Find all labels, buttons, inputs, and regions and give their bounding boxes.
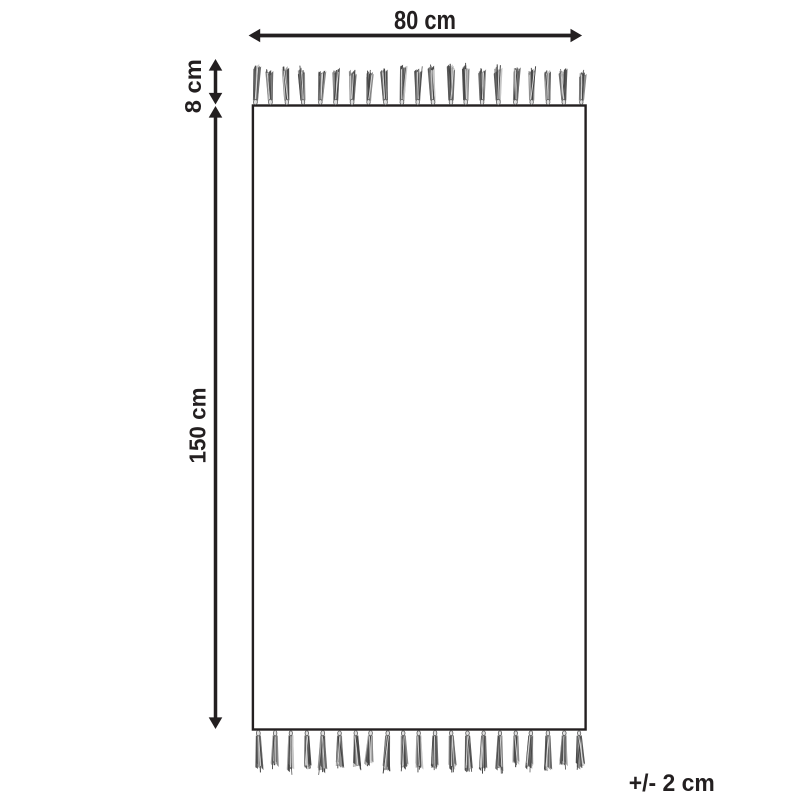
svg-text:80 cm: 80 cm — [394, 7, 456, 35]
svg-text:150 cm: 150 cm — [184, 388, 210, 464]
svg-text:8 cm: 8 cm — [180, 59, 206, 113]
svg-text:+/- 2 cm: +/- 2 cm — [629, 770, 715, 797]
